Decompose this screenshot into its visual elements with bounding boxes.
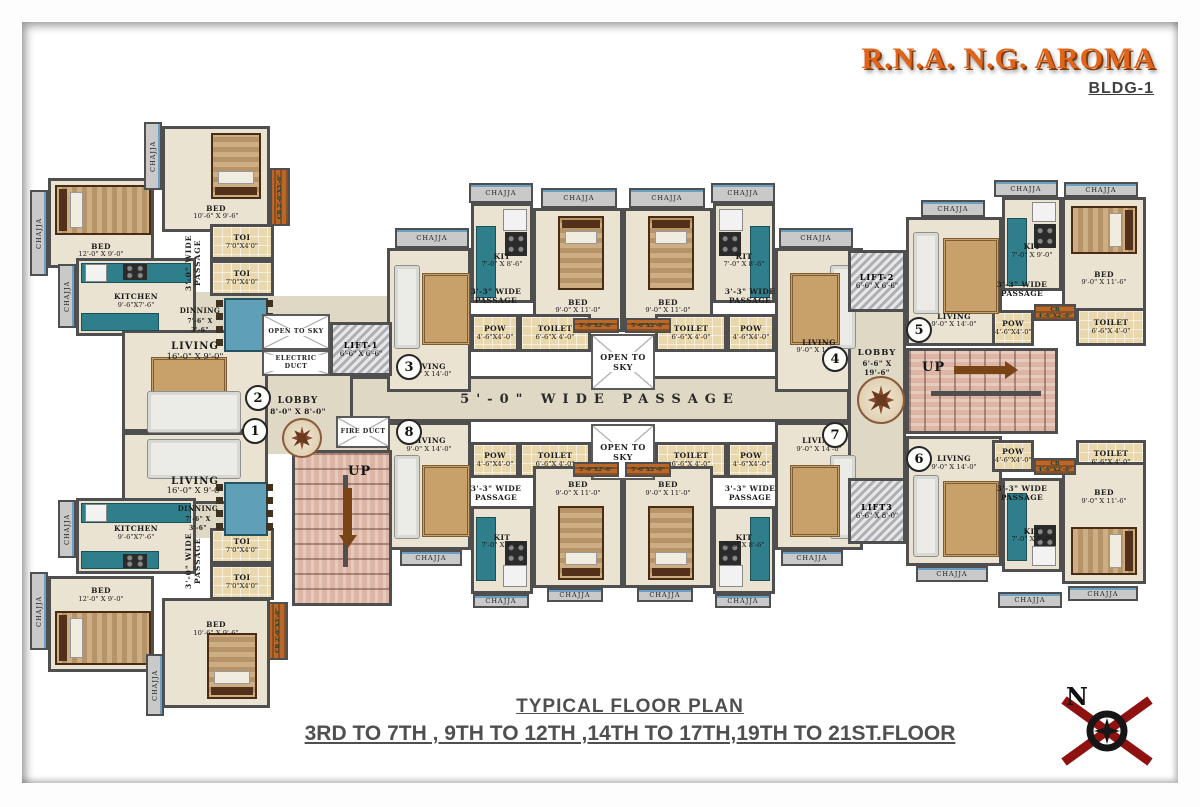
chajja-u5-living: CHAJJA <box>921 200 985 217</box>
stove <box>123 264 147 280</box>
chajja-u2-kitchen: CHAJJA <box>58 264 76 328</box>
lobby-floor-medallion <box>857 376 905 424</box>
open-to-sky-top: OPEN TO SKY <box>591 334 655 390</box>
room-pow-u3: POW4'-6"X4'-0" <box>471 314 519 352</box>
north-label: N <box>1066 682 1088 711</box>
bed-furniture <box>558 216 604 290</box>
stairs-up-label-right: UP <box>922 360 945 375</box>
unit-circle-5: 5 <box>906 317 932 343</box>
chajja-u3-kit: CHAJJA <box>469 183 533 203</box>
cb-strip-u5: CB 4'-6"X2'-0" <box>1034 304 1076 321</box>
passage-33-label-u4: 3'-3" WIDE PASSAGE <box>721 287 779 306</box>
chajja-u4-bed: CHAJJA <box>629 188 705 208</box>
rug <box>422 273 470 345</box>
chajja-u2-left: CHAJJA <box>30 190 48 276</box>
fridge-appliance <box>719 209 743 231</box>
rug <box>422 465 470 537</box>
lobby-left-label: LOBBY 8'-0" X 8'-0" <box>262 396 334 417</box>
rug <box>790 465 840 537</box>
chajja-u2-top: CHAJJA <box>144 122 162 190</box>
sofa-furniture <box>147 439 241 479</box>
room-kit-u7: KIT 7'-0" X 8'-6" <box>713 506 775 594</box>
unit-circle-4: 4 <box>822 346 848 372</box>
room-bed-u4: BED 9'-0" X 11'-0" <box>623 208 713 332</box>
room-kit-u5: KIT 7'-0" X 9'-0" <box>1002 197 1062 291</box>
bed-furniture <box>648 506 694 580</box>
chajja-u3-bed: CHAJJA <box>541 188 617 208</box>
room-living-u1: LIVING 16'-0" X 9'-0" <box>122 432 268 504</box>
passage-33-label-u5: 3'-3" WIDE PASSAGE <box>994 280 1050 299</box>
chajja-u6-kit: CHAJJA <box>998 592 1062 608</box>
room-bed-u6: BED 9'-0" X 11'-6" <box>1062 462 1146 584</box>
lobby-floor-medallion <box>282 418 322 458</box>
bed-furniture <box>55 185 151 235</box>
unit-circle-7: 7 <box>822 422 848 448</box>
room-toilet-u5: TOILET6'-6"X 4'-0" <box>1076 308 1146 346</box>
room-pow-u4: POW4'-6"X4'-0" <box>727 314 775 352</box>
rug <box>943 481 999 557</box>
chajja-u1-kitchen: CHAJJA <box>58 500 76 558</box>
sofa-furniture <box>394 455 420 539</box>
rug <box>790 273 840 345</box>
compass-medallion-icon <box>865 384 897 416</box>
sofa-furniture <box>394 265 420 349</box>
chajja-u7-bed: CHAJJA <box>637 588 693 602</box>
bed-furniture <box>1071 206 1137 254</box>
chajja-u1-bottom: CHAJJA <box>146 654 164 716</box>
room-bed-u1b: BED 12'-0" X 9'-0" <box>48 576 154 672</box>
chajja-u5-kit: CHAJJA <box>994 180 1058 197</box>
cb-closet-strip: CB 2'-0"X5'-0" <box>270 168 290 226</box>
project-title: R.N.A. N.G. AROMA <box>862 42 1157 76</box>
chajja-u4-kit: CHAJJA <box>711 183 775 203</box>
passage-33-label-u6: 3'-3" WIDE PASSAGE <box>994 484 1050 503</box>
open-to-sky-left: OPEN TO SKY <box>262 314 330 350</box>
room-toi-u2b: TOI 7'0"X4'0" <box>210 260 274 296</box>
chajja-u1-left: CHAJJA <box>30 572 48 650</box>
lift-2: LIFT-26'-6" X 6'-6" <box>848 250 906 312</box>
floor-plan-page: { "header": { "title": "R.N.A. N.G. AROM… <box>0 0 1200 807</box>
bed-furniture <box>211 133 261 199</box>
chajja-u7-living: CHAJJA <box>781 550 843 566</box>
stairs-up-label-left: UP <box>348 464 371 479</box>
room-toi-u2a: TOI 7'0"X4'0" <box>210 224 274 260</box>
dinning-label-u2: DINNING 7'-6" X 3'-6" <box>178 306 222 335</box>
passage-33-label-u3: 3'-3" WIDE PASSAGE <box>467 287 525 306</box>
stair-divider <box>931 391 1041 396</box>
stairs-up-arrow-left <box>344 488 352 536</box>
kitchen-counter <box>81 313 159 331</box>
chajja-u8-kit: CHAJJA <box>473 594 529 608</box>
cb-closet-strip: CB 2'-0"X5'-0" <box>268 602 288 660</box>
room-bed-u2b: BED 12'-0" X 9'-0" <box>48 178 154 268</box>
cb-strip-u6: CB 4'-6"X2'-0" <box>1034 458 1076 475</box>
unit-circle-8: 8 <box>396 419 422 445</box>
passage-33-label-u8: 3'-3" WIDE PASSAGE <box>467 484 525 503</box>
stove <box>123 554 147 568</box>
chajja-u6-living: CHAJJA <box>916 566 988 582</box>
lift-3: LIFT36'-6" X 8'-0" <box>848 478 906 544</box>
dining-chairs <box>266 484 273 530</box>
sink-appliance <box>85 264 107 282</box>
sofa-furniture <box>913 475 939 557</box>
sofa-furniture <box>913 232 939 314</box>
room-living-u2: LIVING 16'-0" X 9'-0" <box>122 330 268 432</box>
chajja-u6-bed: CHAJJA <box>1068 586 1138 601</box>
passage-33-label-u7: 3'-3" WIDE PASSAGE <box>721 484 779 503</box>
chajja-u4-living: CHAJJA <box>779 228 853 248</box>
chajja-u3-living: CHAJJA <box>395 228 469 248</box>
bed-furniture <box>558 506 604 580</box>
unit-circle-6: 6 <box>906 446 932 472</box>
room-bed-u8: BED 9'-0" X 11'-0" <box>533 466 623 588</box>
room-bed-u7: BED 9'-0" X 11'-0" <box>623 466 713 588</box>
sofa-furniture <box>147 391 241 433</box>
stairs-up-arrow-right <box>954 366 1006 374</box>
plan-title: TYPICAL FLOOR PLAN <box>320 696 940 718</box>
fridge-appliance <box>719 565 743 587</box>
room-bed-u3: BED 9'-0" X 11'-0" <box>533 208 623 332</box>
unit-circle-2: 2 <box>245 385 271 411</box>
electric-duct: ELECTRIC DUCT <box>262 350 330 376</box>
room-bed-u5: BED 9'-0" X 11'-6" <box>1062 197 1146 316</box>
chajja-u8-bed: CHAJJA <box>547 588 603 602</box>
bed-furniture <box>207 633 257 699</box>
unit-circle-3: 3 <box>396 354 422 380</box>
passage-3-0-label-u1: 3'-0" WIDE PASSAGE <box>184 526 204 596</box>
main-passage-label: 5'-0" WIDE PASSAGE <box>460 392 740 407</box>
bed-furniture <box>55 611 151 665</box>
compass-medallion-icon <box>289 425 315 451</box>
unit-circle-1: 1 <box>242 418 268 444</box>
building-number: BLDG-1 <box>1088 80 1154 98</box>
chajja-u5-bed: CHAJJA <box>1064 182 1138 197</box>
room-kit-u8: KIT 7'-0" X 8'-6" <box>471 506 533 594</box>
fire-duct: FIRE DUCT <box>336 416 390 448</box>
sink-appliance <box>1032 546 1056 566</box>
room-pow-u7: POW4'-6"X4'-0" <box>727 442 775 478</box>
rug <box>151 357 227 395</box>
chajja-u7-kit: CHAJJA <box>715 594 771 608</box>
passage-3-0-label-u2: 3'-0" WIDE PASSAGE <box>184 228 204 298</box>
sink-appliance <box>1032 202 1056 222</box>
fridge-appliance <box>503 565 527 587</box>
rug <box>943 238 999 314</box>
bed-furniture <box>648 216 694 290</box>
plan-floors: 3RD TO 7TH , 9TH TO 12TH ,14TH TO 17TH,1… <box>270 722 990 746</box>
room-pow-u8: POW4'-6"X4'-0" <box>471 442 519 478</box>
staircase-left <box>292 450 392 606</box>
kitchen-counter <box>81 551 159 569</box>
room-bed-u2a: BED 10'-6" X 9'-6" <box>162 126 270 232</box>
room-toi-u1b: TOI7'0"X4'0" <box>210 564 274 600</box>
sink-appliance <box>85 504 107 522</box>
lift-1: LIFT-16'-6" X 6'-6" <box>330 322 392 376</box>
room-bed-u1a: BED 10'-6" X 9'-6" <box>162 598 270 708</box>
bed-furniture <box>1071 527 1137 575</box>
chajja-u8-living: CHAJJA <box>400 550 462 566</box>
fridge-appliance <box>503 209 527 231</box>
